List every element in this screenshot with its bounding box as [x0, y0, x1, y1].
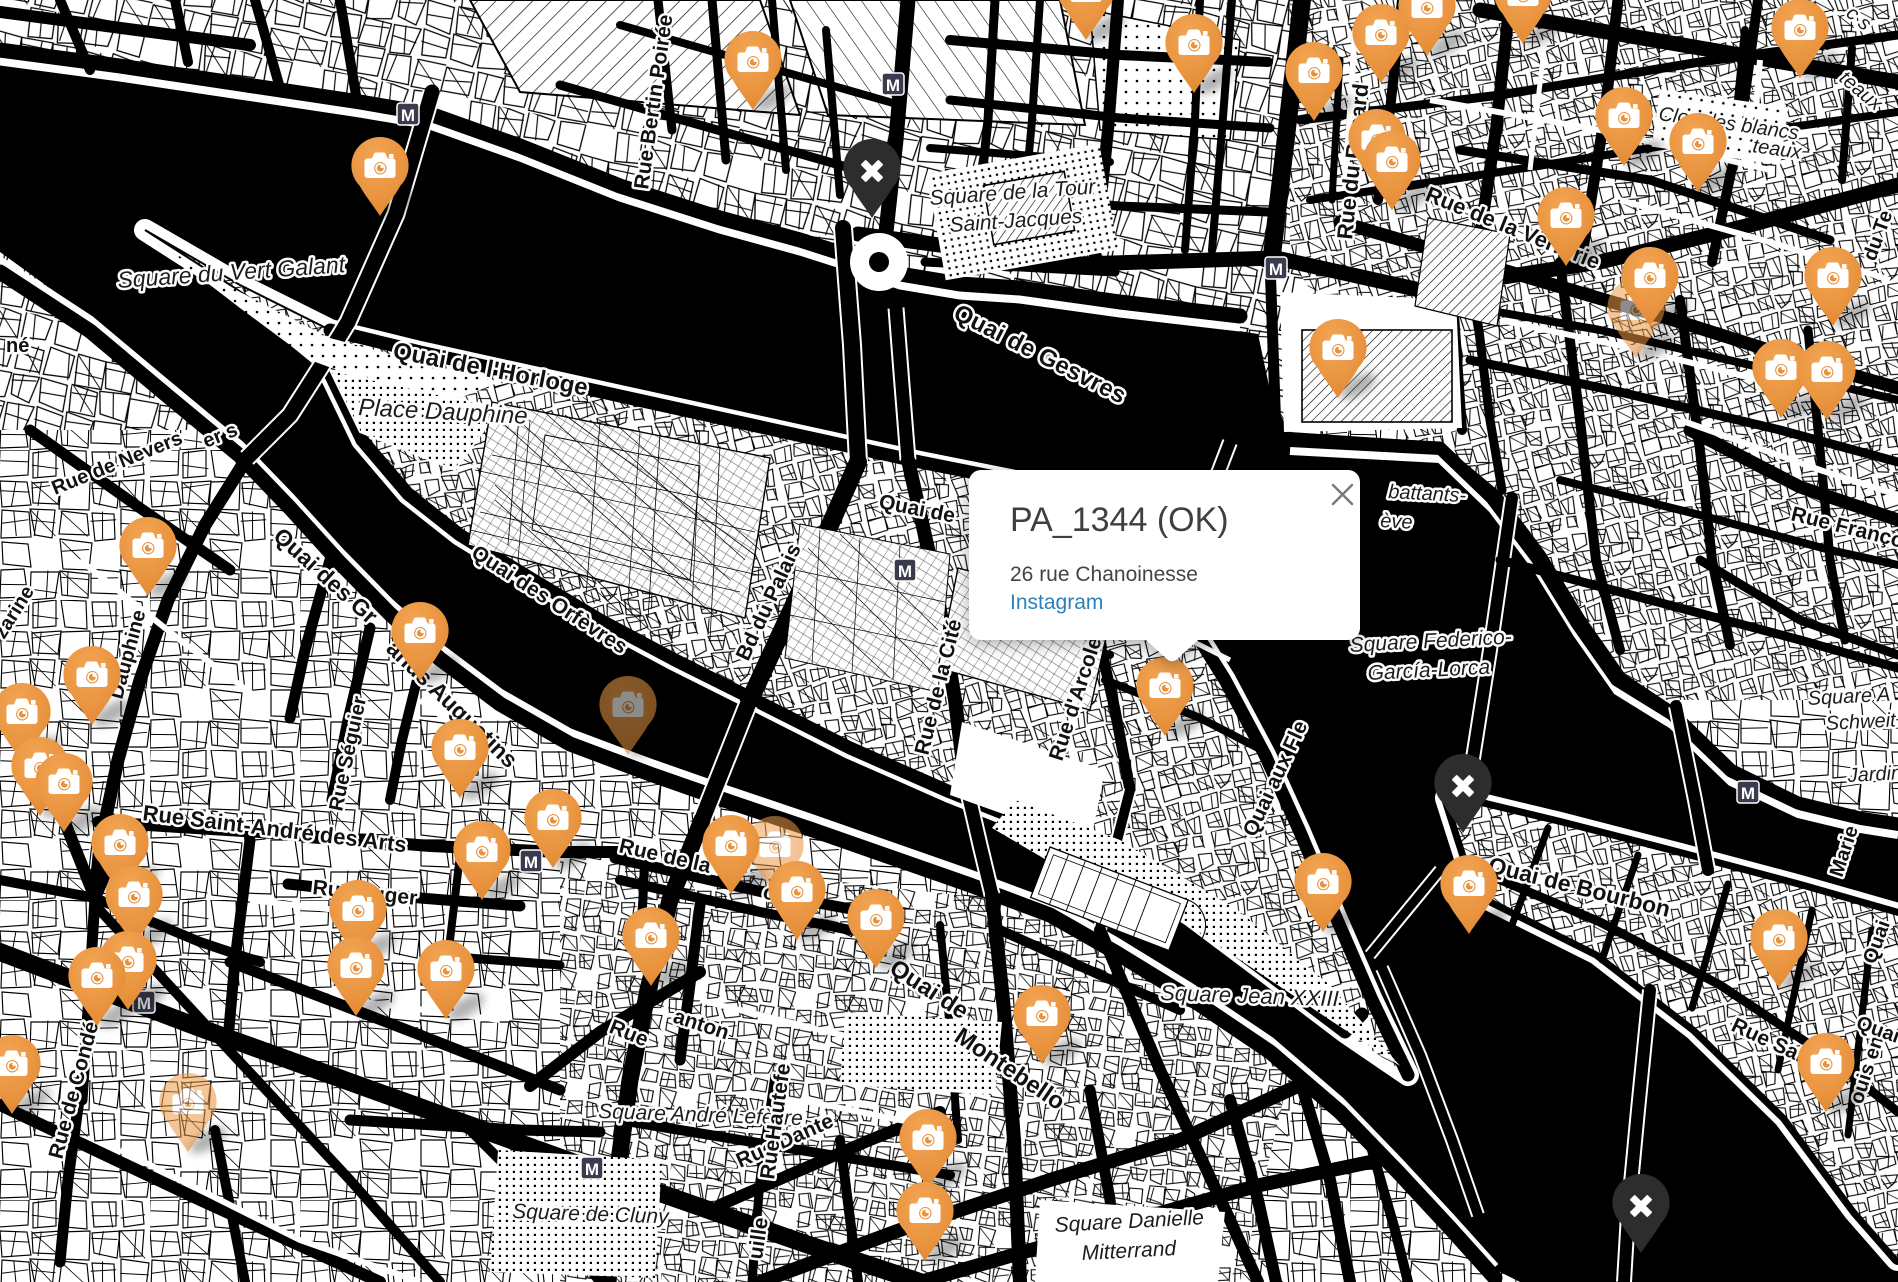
svg-text:Instagram: Instagram: [1010, 591, 1103, 614]
svg-text:Square A: Square A: [1807, 684, 1891, 710]
svg-text:M: M: [401, 106, 415, 125]
svg-text:PA_1344 (OK): PA_1344 (OK): [1010, 501, 1229, 539]
svg-text:né: né: [6, 335, 29, 357]
svg-text:M: M: [1269, 260, 1283, 279]
svg-text:M: M: [585, 1160, 599, 1179]
svg-text:Jardin: Jardin: [1846, 762, 1898, 787]
svg-text:Schweit: Schweit: [1825, 709, 1898, 735]
svg-text:M: M: [524, 853, 538, 872]
svg-text:26 rue Chanoinesse: 26 rue Chanoinesse: [1010, 563, 1198, 586]
svg-text:battants-: battants-: [1388, 481, 1467, 507]
svg-text:M: M: [898, 562, 912, 581]
svg-text:M: M: [886, 76, 900, 95]
svg-text:M: M: [1741, 784, 1755, 803]
svg-text:ève: ève: [1380, 510, 1413, 534]
